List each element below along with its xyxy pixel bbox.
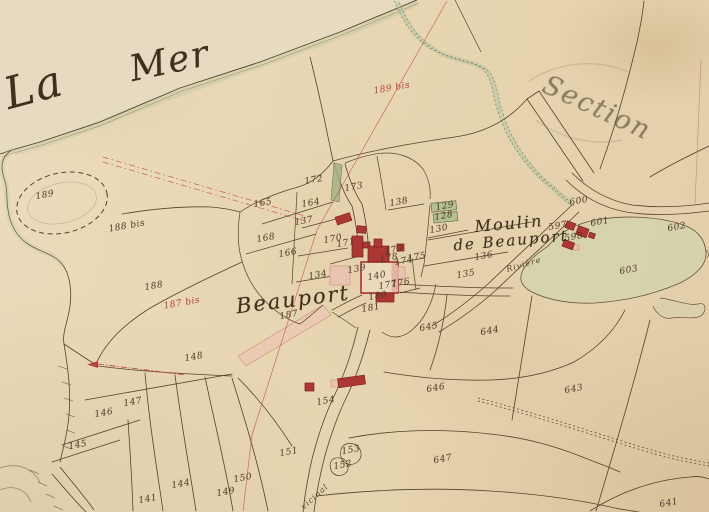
sea-area — [0, 0, 419, 157]
slope-hatching — [30, 366, 75, 510]
footpath-dotted — [478, 398, 709, 466]
map-linework — [0, 0, 709, 512]
shore-road — [52, 467, 94, 512]
red-dashdot-path — [103, 157, 305, 221]
cove-outline — [0, 150, 71, 502]
village-parcel-lines — [238, 153, 468, 476]
south-road — [303, 327, 358, 512]
islet-dashed-outline — [10, 163, 113, 242]
cadastral-map: LaMerBeauportMoulinde BeauportSectionRiv… — [0, 0, 709, 512]
red-arrow-line — [98, 364, 186, 375]
